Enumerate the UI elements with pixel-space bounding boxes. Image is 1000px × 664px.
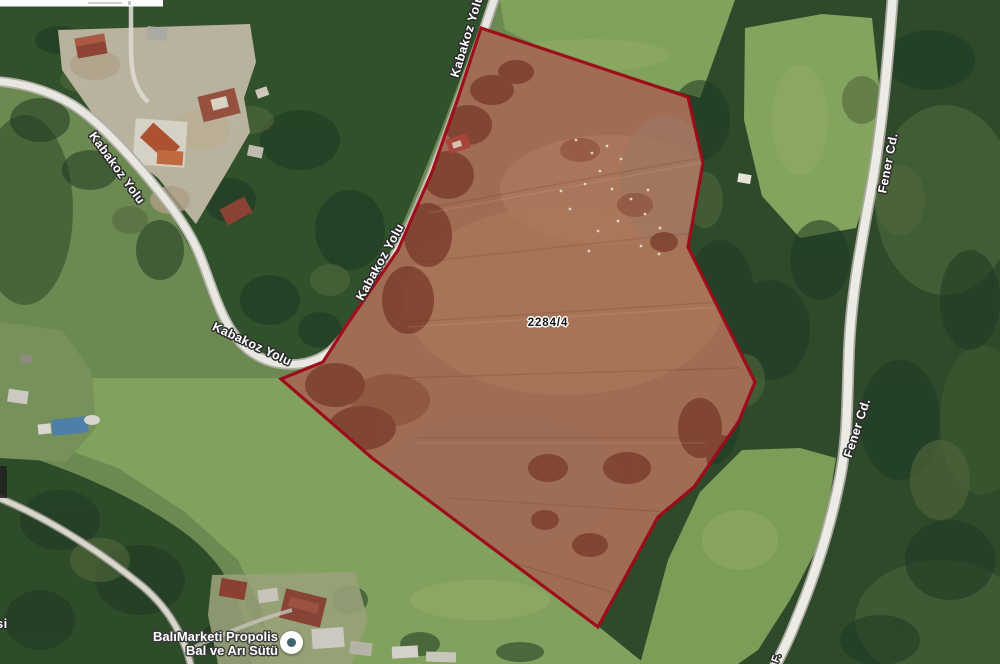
poi-label-line2: Bal ve Arı Sütü: [146, 644, 278, 658]
partial-label-left-edge: si: [0, 616, 8, 631]
poi-marker-dot: [287, 638, 296, 647]
poi-label[interactable]: BalıMarketi Propolis Bal ve Arı Sütü: [146, 630, 278, 657]
poi-label-line1: BalıMarketi Propolis: [146, 630, 278, 644]
parcel-number-label: 2284/4: [528, 317, 569, 329]
satellite-map-view[interactable]: Kabakoz Yolu Kabakoz Yolu Kabakoz Yolu K…: [0, 0, 1000, 664]
satellite-imagery: [0, 0, 1000, 664]
poi-marker[interactable]: [280, 631, 303, 654]
